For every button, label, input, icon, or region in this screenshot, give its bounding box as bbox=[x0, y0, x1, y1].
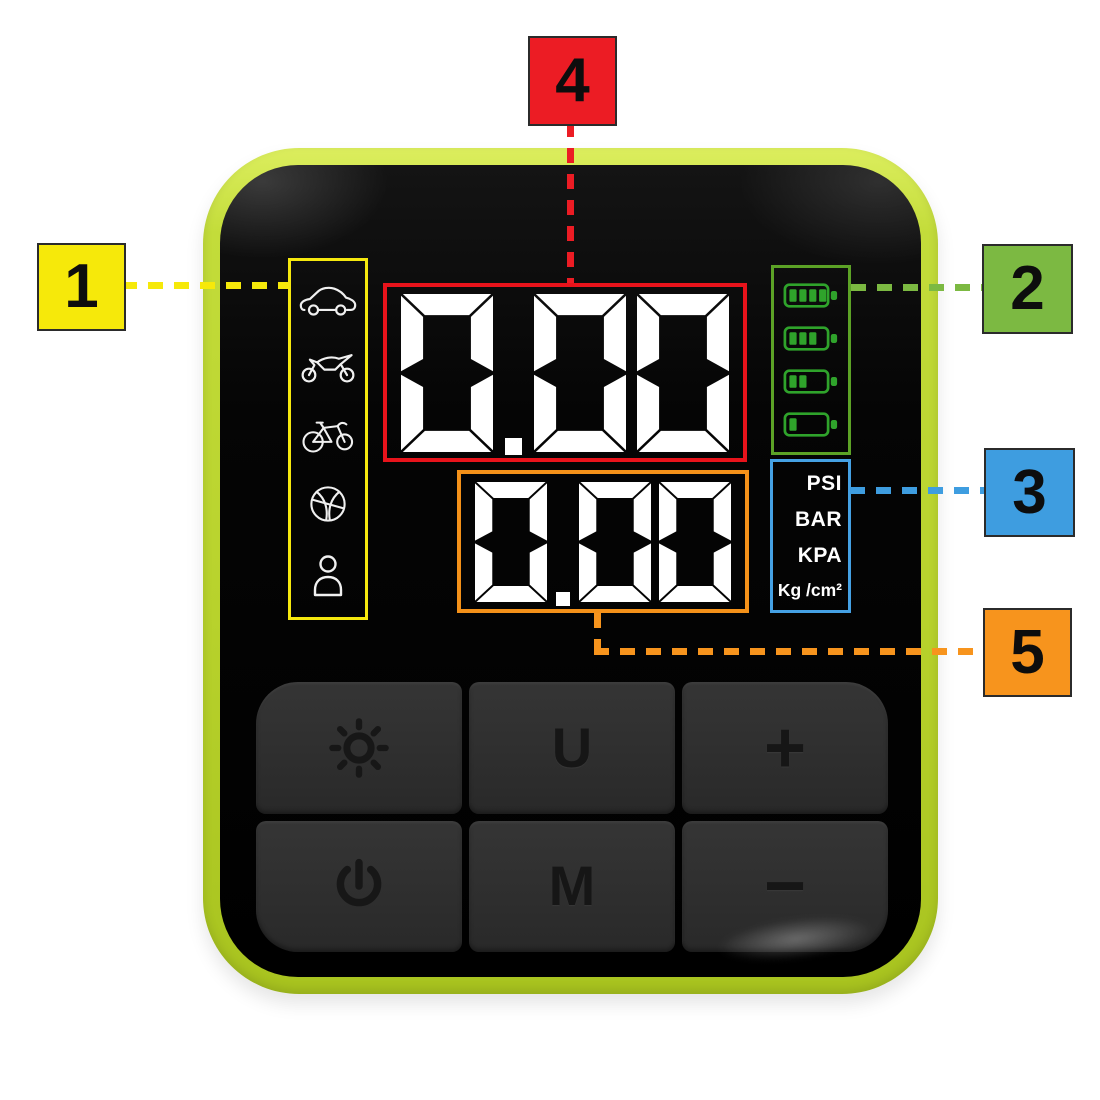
car-icon bbox=[299, 281, 357, 319]
unit-bar: BAR bbox=[776, 509, 842, 530]
mode-button[interactable]: M bbox=[469, 821, 675, 953]
target-pressure-value bbox=[461, 474, 745, 609]
unit-psi: PSI bbox=[776, 473, 842, 494]
callout-3-connector bbox=[850, 487, 984, 494]
annotated-inflator-figure: PSI BAR KPA Kg /cm² bbox=[0, 0, 1100, 1100]
vehicle-mode-panel bbox=[288, 258, 368, 620]
device-front-panel: PSI BAR KPA Kg /cm² bbox=[220, 165, 921, 977]
battery-icon bbox=[782, 411, 840, 438]
callout-3-number: 3 bbox=[1012, 462, 1046, 524]
sun-icon bbox=[322, 711, 396, 785]
increase-button-label: + bbox=[764, 712, 806, 784]
unit-kg-cm2: Kg /cm² bbox=[776, 582, 842, 600]
pressure-unit-panel: PSI BAR KPA Kg /cm² bbox=[770, 459, 851, 613]
battery-icon bbox=[782, 368, 840, 395]
callout-5-connector-horizontal bbox=[594, 648, 983, 655]
main-pressure-value bbox=[387, 287, 743, 458]
main-pressure-display bbox=[383, 283, 747, 462]
power-icon bbox=[325, 852, 393, 920]
callout-1: 1 bbox=[37, 243, 126, 331]
callout-3: 3 bbox=[984, 448, 1075, 537]
person-icon bbox=[308, 553, 348, 597]
unit-button-label: U bbox=[552, 720, 592, 776]
mode-button-label: M bbox=[549, 858, 596, 914]
callout-4-number: 4 bbox=[555, 50, 589, 112]
battery-icon bbox=[782, 325, 840, 352]
decrease-button-label: − bbox=[764, 850, 806, 922]
callout-5: 5 bbox=[983, 608, 1072, 697]
basketball-icon bbox=[307, 483, 349, 525]
callout-2-connector bbox=[851, 284, 982, 291]
unit-kpa: KPA bbox=[776, 545, 842, 566]
unit-button[interactable]: U bbox=[469, 682, 675, 814]
increase-button[interactable]: + bbox=[682, 682, 888, 814]
callout-5-number: 5 bbox=[1010, 622, 1044, 684]
motorcycle-icon bbox=[299, 347, 357, 385]
brightness-button[interactable] bbox=[256, 682, 462, 814]
battery-icon bbox=[782, 282, 840, 309]
callout-1-number: 1 bbox=[64, 256, 98, 318]
bicycle-icon bbox=[300, 413, 356, 455]
callout-2-number: 2 bbox=[1010, 258, 1044, 320]
callout-2: 2 bbox=[982, 244, 1073, 334]
callout-4-connector bbox=[567, 122, 574, 283]
power-button[interactable] bbox=[256, 821, 462, 953]
target-pressure-display bbox=[457, 470, 749, 613]
callout-1-connector bbox=[122, 282, 288, 289]
callout-4: 4 bbox=[528, 36, 617, 126]
keypad: U + M − bbox=[256, 682, 888, 952]
battery-level-panel bbox=[771, 265, 851, 455]
callout-5-connector-vertical bbox=[594, 613, 601, 649]
